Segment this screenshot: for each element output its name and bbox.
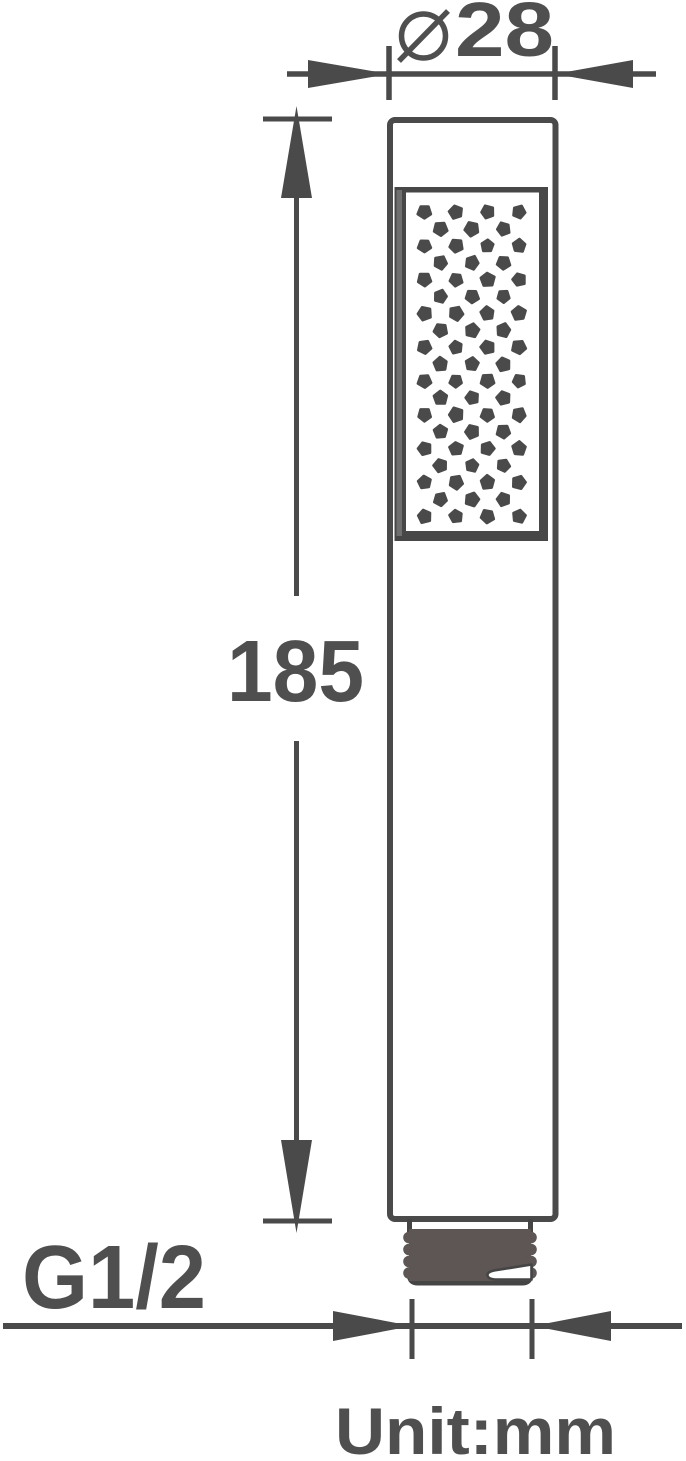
- svg-text:Unit:mm: Unit:mm: [335, 1395, 616, 1461]
- svg-text:G1/2: G1/2: [22, 1228, 206, 1328]
- svg-text:28: 28: [455, 0, 554, 73]
- svg-text:185: 185: [227, 623, 364, 720]
